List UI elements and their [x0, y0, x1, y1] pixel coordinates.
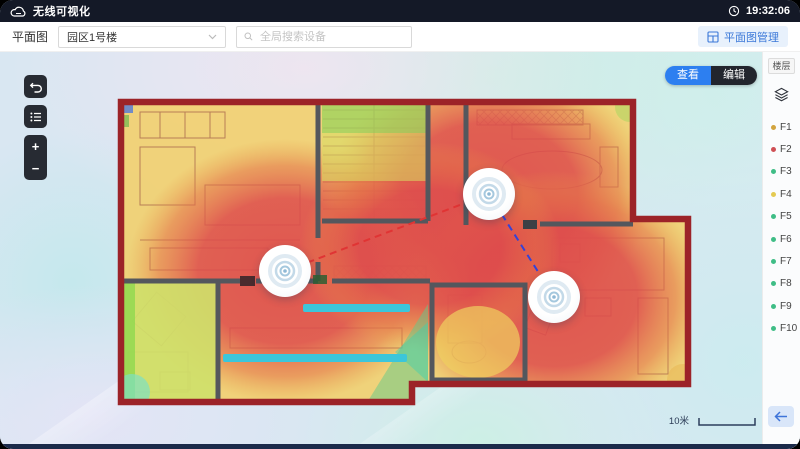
ap-icon: [463, 168, 515, 220]
ap-icon: [259, 245, 311, 297]
floor-label: F2: [780, 144, 792, 155]
clock-time: 19:32:06: [746, 5, 790, 17]
cloud-logo-icon: [10, 5, 27, 18]
undo-icon: [29, 80, 43, 94]
mode-toggle: 查看 编辑: [665, 66, 757, 85]
floor-label: F3: [780, 166, 792, 177]
floor-list: F1F2F3F4F5F6F7F8F9F10: [763, 116, 800, 340]
building-select-value: 园区1号楼: [67, 29, 117, 45]
door-mark: [240, 276, 255, 286]
floor-item-f3[interactable]: F3: [763, 161, 800, 183]
door-mark: [313, 275, 327, 284]
floors-panel: 楼层 F1F2F3F4F5F6F7F8F9F10: [762, 52, 800, 449]
layers-button[interactable]: [774, 87, 789, 107]
corner-mark: [124, 115, 129, 127]
mode-edit-button[interactable]: 编辑: [711, 66, 757, 85]
floor-item-f4[interactable]: F4: [763, 183, 800, 205]
floor-item-f1[interactable]: F1: [763, 116, 800, 138]
building: [114, 64, 706, 423]
floor-status-dot: [771, 125, 776, 130]
floor-status-dot: [771, 169, 776, 174]
layers-icon: [774, 87, 789, 102]
map-scale: 10米: [669, 413, 756, 427]
floor-item-f5[interactable]: F5: [763, 206, 800, 228]
floor-status-dot: [771, 281, 776, 286]
floor-plan-manage-icon: [707, 31, 719, 43]
floor-item-f2[interactable]: F2: [763, 138, 800, 160]
floor-label: F5: [780, 211, 792, 222]
floor-status-dot: [771, 214, 776, 219]
back-button[interactable]: [768, 406, 794, 427]
floor-plan-manage-label: 平面图管理: [724, 29, 779, 45]
scale-bracket: [698, 417, 756, 427]
building-select[interactable]: 园区1号楼: [58, 26, 226, 48]
floor-status-dot: [771, 304, 776, 309]
zoom-control: + −: [24, 135, 47, 180]
floor-item-f9[interactable]: F9: [763, 295, 800, 317]
search-icon: [244, 31, 253, 42]
floor-status-dot: [771, 259, 776, 264]
floor-label: F4: [780, 189, 792, 200]
undo-button[interactable]: [24, 75, 47, 98]
device-list-button[interactable]: [24, 105, 47, 128]
floor-label: F10: [780, 323, 797, 334]
floor-plan-manage-button[interactable]: 平面图管理: [698, 26, 788, 47]
floor-item-f6[interactable]: F6: [763, 228, 800, 250]
ap-device[interactable]: [528, 271, 580, 323]
corner-mark: [124, 104, 133, 113]
floorplan-svg: [0, 52, 800, 449]
floor-status-dot: [771, 147, 776, 152]
map-canvas[interactable]: + − 查看 编辑 10米: [0, 52, 800, 449]
back-arrow-icon: [774, 411, 788, 422]
door-mark: [523, 220, 537, 229]
floors-panel-title: 楼层: [768, 58, 794, 74]
ap-icon: [528, 271, 580, 323]
list-icon: [29, 110, 43, 124]
floor-label: F8: [780, 278, 792, 289]
floor-label: F1: [780, 122, 792, 133]
floor-plan-label: 平面图: [12, 28, 48, 45]
floor-status-dot: [771, 237, 776, 242]
floor-item-f10[interactable]: F10: [763, 318, 800, 340]
floor-label: F7: [780, 256, 792, 267]
scale-label: 10米: [669, 413, 689, 427]
top-bar: 无线可视化 19:32:06: [0, 0, 800, 22]
floor-label: F6: [780, 234, 792, 245]
floor-item-f7[interactable]: F7: [763, 250, 800, 272]
mode-view-button[interactable]: 查看: [665, 66, 711, 85]
device-search[interactable]: [236, 26, 412, 48]
map-tools: + −: [24, 75, 47, 180]
floor-status-dot: [771, 326, 776, 331]
zoom-in-button[interactable]: +: [24, 140, 47, 153]
search-input[interactable]: [258, 30, 404, 44]
ap-device[interactable]: [463, 168, 515, 220]
chevron-down-icon: [208, 34, 217, 40]
ap-device[interactable]: [259, 245, 311, 297]
sub-toolbar: 平面图 园区1号楼 平面图管理: [0, 22, 800, 52]
zoom-out-button[interactable]: −: [24, 162, 47, 175]
app-window: 无线可视化 19:32:06 平面图 园区1号楼: [0, 0, 800, 449]
floor-label: F9: [780, 301, 792, 312]
app-title: 无线可视化: [33, 3, 91, 19]
floor-item-f8[interactable]: F8: [763, 273, 800, 295]
clock-icon: [728, 5, 740, 17]
floor-status-dot: [771, 192, 776, 197]
